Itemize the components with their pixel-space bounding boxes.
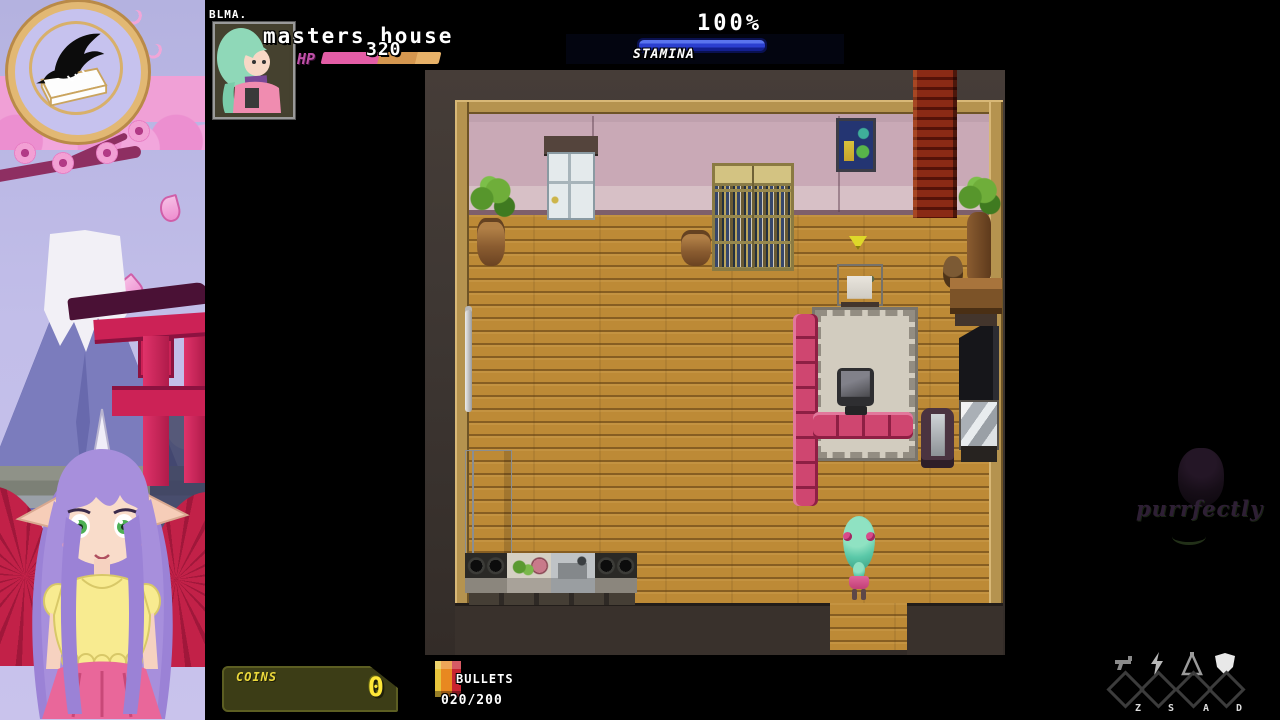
crow-on-book-logo-icon — [27, 19, 119, 111]
double-bookcase — [712, 163, 794, 271]
skill-key: D — [1236, 703, 1242, 714]
bullets-count: 020/200 — [441, 693, 503, 708]
microwave — [837, 264, 883, 306]
side-table — [950, 278, 1002, 314]
falling-petal — [157, 194, 183, 224]
wall-picture-frame — [836, 118, 876, 172]
stove-left — [465, 553, 507, 593]
armchair — [921, 408, 954, 468]
floor-pot — [681, 230, 711, 266]
watermark-text: purrfectly — [1136, 496, 1263, 521]
television — [837, 368, 874, 406]
map-debug-tag: BLMA. — [209, 8, 247, 21]
player-leg — [852, 589, 857, 600]
streamer-logo-badge — [8, 2, 148, 142]
coins-label: COINS — [236, 670, 277, 684]
crescent-moon-icon — [128, 10, 144, 26]
hair-bow — [843, 532, 852, 541]
player-skirt — [849, 576, 869, 589]
stove-right — [595, 553, 637, 593]
floor-pole-lamp — [465, 310, 472, 412]
skill-slot-z[interactable]: Z — [1106, 650, 1142, 714]
player-leg — [861, 589, 866, 600]
tall-plant-leaves — [957, 173, 1001, 217]
bullets-label: BULLETS — [456, 672, 514, 686]
hair-bow — [866, 532, 875, 541]
skill-slot-s[interactable]: S — [1139, 650, 1175, 714]
television-stand — [845, 406, 867, 415]
blossom-flower — [52, 152, 74, 174]
prep-counter — [507, 553, 551, 593]
crescent-moon-icon — [148, 44, 164, 60]
player-character — [843, 516, 875, 600]
blossom-flower — [14, 142, 36, 164]
side-table-shadow — [955, 314, 997, 326]
coins-value: 0 — [368, 672, 384, 703]
sofa-horizontal — [813, 412, 913, 439]
wardrobe-base — [961, 446, 997, 462]
refrigerator — [465, 450, 512, 555]
stream-frame: BLMA. masters house HP 320 100% STAMINA — [0, 0, 1280, 720]
potted-plant-pot — [477, 218, 505, 266]
stamina-label: STAMINA — [633, 47, 695, 62]
mirror-panel — [959, 400, 999, 450]
skill-slot-a[interactable]: A — [1174, 650, 1210, 714]
stamina-percent: 100% — [697, 11, 762, 36]
skill-slot-d[interactable]: D — [1207, 650, 1243, 714]
vtuber-avatar — [10, 408, 195, 720]
sofa-vertical — [793, 314, 818, 506]
bottom-wall — [455, 603, 830, 655]
location-name: masters house — [263, 24, 453, 48]
kitchen-counter — [465, 553, 637, 593]
coins-panel: COINS 0 — [222, 666, 398, 712]
kitchen-sink — [551, 553, 595, 593]
potted-plant-leaves — [467, 170, 517, 222]
blossom-flower — [128, 120, 150, 142]
brick-chimney — [913, 70, 957, 218]
counter-legs — [469, 593, 635, 605]
tall-plant-vase — [967, 212, 991, 280]
hp-value: 320 — [366, 39, 402, 60]
hp-label: HP — [297, 50, 315, 68]
white-door — [547, 152, 595, 220]
bottom-wall — [907, 603, 1003, 655]
black-wardrobe-top — [959, 326, 999, 402]
watermark-swirl — [1172, 528, 1206, 545]
stream-overlay-sidebar — [0, 0, 205, 720]
blossom-flower — [96, 142, 118, 164]
game-viewport[interactable] — [425, 70, 1005, 655]
doorway-floor-exit — [830, 603, 907, 650]
